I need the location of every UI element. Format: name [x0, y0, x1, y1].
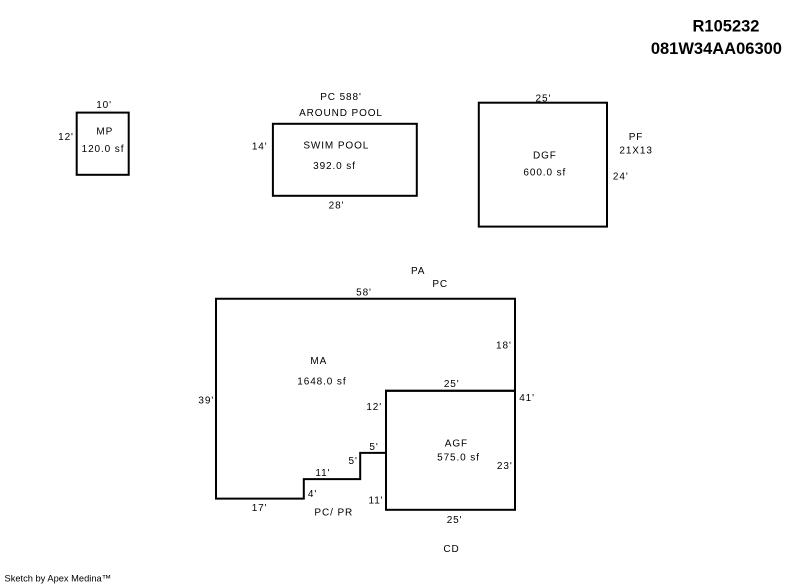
svg-text:PC: PC: [432, 279, 448, 290]
svg-text:17': 17': [252, 503, 268, 514]
svg-text:12': 12': [58, 132, 74, 143]
svg-text:23': 23': [497, 461, 513, 472]
svg-text:39': 39': [198, 395, 214, 406]
svg-text:PC 588': PC 588': [320, 92, 362, 103]
svg-text:AROUND POOL: AROUND POOL: [299, 108, 383, 119]
svg-text:MA: MA: [310, 356, 327, 367]
svg-text:5': 5': [349, 456, 358, 467]
svg-text:392.0 sf: 392.0 sf: [313, 161, 356, 172]
svg-text:5': 5': [369, 442, 378, 453]
svg-text:PF: PF: [629, 132, 644, 143]
svg-text:18': 18': [496, 341, 512, 352]
svg-text:21X13: 21X13: [619, 146, 652, 157]
svg-text:11': 11': [315, 468, 330, 479]
svg-text:Sketch by Apex Medina™: Sketch by Apex Medina™: [5, 574, 111, 584]
svg-text:R105232: R105232: [693, 18, 760, 36]
svg-text:1648.0 sf: 1648.0 sf: [297, 376, 346, 387]
svg-text:CD: CD: [443, 544, 459, 555]
svg-text:11': 11': [369, 496, 384, 507]
svg-text:4': 4': [308, 489, 317, 500]
svg-text:24': 24': [613, 172, 629, 183]
svg-text:MP: MP: [96, 127, 113, 138]
svg-text:DGF: DGF: [533, 151, 557, 162]
svg-text:25': 25': [444, 379, 460, 390]
svg-text:120.0 sf: 120.0 sf: [82, 144, 125, 155]
svg-text:28': 28': [329, 201, 345, 212]
svg-text:14': 14': [252, 141, 268, 152]
svg-text:600.0 sf: 600.0 sf: [523, 167, 566, 178]
svg-text:AGF: AGF: [445, 439, 468, 450]
svg-text:PC/ PR: PC/ PR: [314, 508, 353, 519]
svg-text:41': 41': [519, 393, 535, 404]
svg-text:575.0 sf: 575.0 sf: [437, 452, 480, 463]
svg-text:10': 10': [96, 100, 112, 111]
svg-text:12': 12': [366, 402, 382, 413]
svg-text:25': 25': [447, 515, 463, 526]
svg-text:SWIM POOL: SWIM POOL: [303, 141, 369, 152]
svg-text:25': 25': [536, 93, 552, 104]
svg-text:PA: PA: [411, 266, 425, 277]
svg-text:58': 58': [356, 288, 372, 299]
svg-text:081W34AA06300: 081W34AA06300: [651, 40, 782, 58]
